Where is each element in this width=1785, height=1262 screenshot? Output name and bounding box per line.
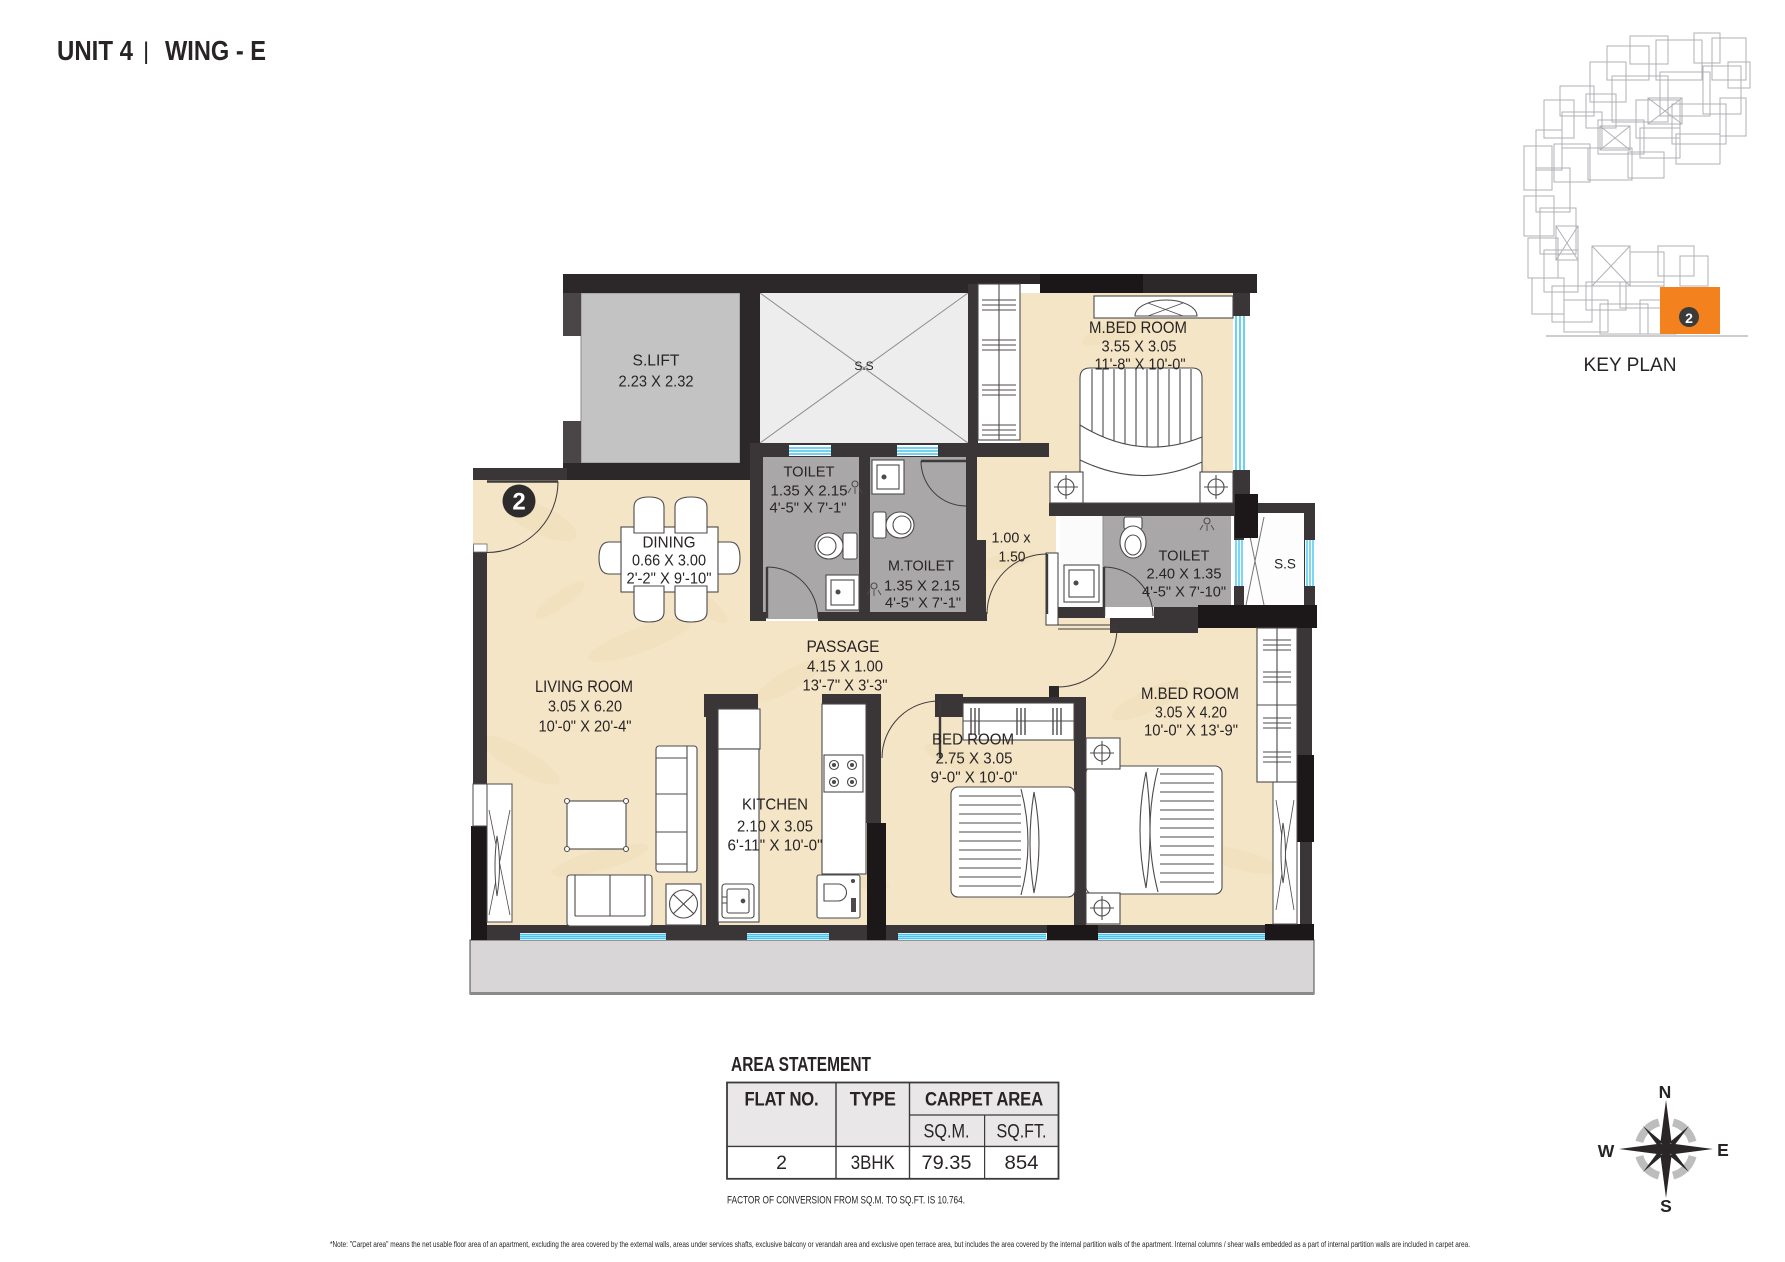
svg-text:4'-5" X 7'-1": 4'-5" X 7'-1" xyxy=(885,595,961,612)
svg-text:SQ.FT.: SQ.FT. xyxy=(997,1121,1047,1143)
svg-text:|: | xyxy=(143,38,149,65)
svg-text:TYPE: TYPE xyxy=(850,1089,896,1111)
svg-text:CARPET AREA: CARPET AREA xyxy=(925,1089,1043,1111)
svg-text:1.35 X 2.15: 1.35 X 2.15 xyxy=(771,483,848,500)
svg-text:TOILET: TOILET xyxy=(784,464,835,481)
svg-text:LIVING ROOM: LIVING ROOM xyxy=(535,678,633,696)
svg-text:2: 2 xyxy=(1685,310,1693,326)
svg-text:TOILET: TOILET xyxy=(1159,548,1210,565)
svg-text:854: 854 xyxy=(1005,1152,1039,1174)
svg-text:KITCHEN: KITCHEN xyxy=(742,797,808,814)
svg-text:1.50: 1.50 xyxy=(999,549,1026,566)
svg-text:2.75 X 3.05: 2.75 X 3.05 xyxy=(936,751,1013,768)
svg-text:2: 2 xyxy=(512,489,525,516)
svg-text:11'-8" X 10'-0": 11'-8" X 10'-0" xyxy=(1095,357,1186,374)
svg-text:1.35 X 2.15: 1.35 X 2.15 xyxy=(884,578,960,595)
svg-text:DINING: DINING xyxy=(643,535,696,552)
svg-text:W: W xyxy=(1598,1141,1615,1161)
svg-text:13'-7" X 3'-3": 13'-7" X 3'-3" xyxy=(803,678,888,695)
svg-text:UNIT 4: UNIT 4 xyxy=(57,35,134,66)
svg-text:2: 2 xyxy=(776,1152,787,1174)
svg-text:S.S: S.S xyxy=(854,359,873,373)
svg-text:4'-5" X 7'-10": 4'-5" X 7'-10" xyxy=(1142,584,1226,601)
svg-text:3.05 X 6.20: 3.05 X 6.20 xyxy=(548,699,622,716)
svg-text:S.S: S.S xyxy=(1274,557,1296,572)
svg-text:KEY PLAN: KEY PLAN xyxy=(1584,354,1677,376)
svg-text:2.40 X 1.35: 2.40 X 1.35 xyxy=(1147,566,1222,583)
svg-text:AREA STATEMENT: AREA STATEMENT xyxy=(731,1054,871,1076)
svg-text:M.BED ROOM: M.BED ROOM xyxy=(1089,319,1187,337)
svg-text:SQ.M.: SQ.M. xyxy=(924,1121,970,1143)
svg-text:FLAT NO.: FLAT NO. xyxy=(745,1089,819,1111)
svg-text:3BHK: 3BHK xyxy=(851,1152,895,1174)
svg-text:4'-5" X 7'-1": 4'-5" X 7'-1" xyxy=(770,500,847,517)
svg-text:PASSAGE: PASSAGE xyxy=(807,638,880,656)
svg-text:2.23 X 2.32: 2.23 X 2.32 xyxy=(619,374,694,391)
svg-text:2'-2" X 9'-10": 2'-2" X 9'-10" xyxy=(627,571,712,588)
svg-text:6'-11" X 10'-0": 6'-11" X 10'-0" xyxy=(728,838,823,855)
svg-text:4.15 X 1.00: 4.15 X 1.00 xyxy=(807,659,883,676)
svg-text:M.TOILET: M.TOILET xyxy=(888,558,954,575)
svg-text:0.66 X 3.00: 0.66 X 3.00 xyxy=(632,553,706,570)
svg-text:79.35: 79.35 xyxy=(922,1152,972,1174)
svg-text:E: E xyxy=(1717,1140,1729,1160)
svg-text:*Note: "Carpet area" means the: *Note: "Carpet area" means the net usabl… xyxy=(330,1239,1470,1249)
svg-text:WING - E: WING - E xyxy=(165,35,266,66)
svg-text:FACTOR OF CONVERSION FROM SQ.M: FACTOR OF CONVERSION FROM SQ.M. TO SQ.FT… xyxy=(727,1195,965,1207)
svg-text:9'-0" X 10'-0": 9'-0" X 10'-0" xyxy=(931,770,1018,787)
svg-text:10'-0" X 20'-4": 10'-0" X 20'-4" xyxy=(539,719,632,736)
svg-text:S: S xyxy=(1660,1196,1672,1216)
svg-text:BED ROOM: BED ROOM xyxy=(932,732,1014,749)
svg-text:3.55 X 3.05: 3.55 X 3.05 xyxy=(1102,339,1177,356)
svg-text:M.BED ROOM: M.BED ROOM xyxy=(1141,685,1239,703)
svg-text:N: N xyxy=(1659,1082,1672,1102)
svg-text:1.00 x: 1.00 x xyxy=(992,530,1031,547)
svg-text:10'-0" X 13'-9": 10'-0" X 13'-9" xyxy=(1144,723,1238,740)
svg-text:2.10 X 3.05: 2.10 X 3.05 xyxy=(737,819,813,836)
svg-text:3.05 X 4.20: 3.05 X 4.20 xyxy=(1155,705,1227,722)
svg-text:S.LIFT: S.LIFT xyxy=(633,353,680,370)
